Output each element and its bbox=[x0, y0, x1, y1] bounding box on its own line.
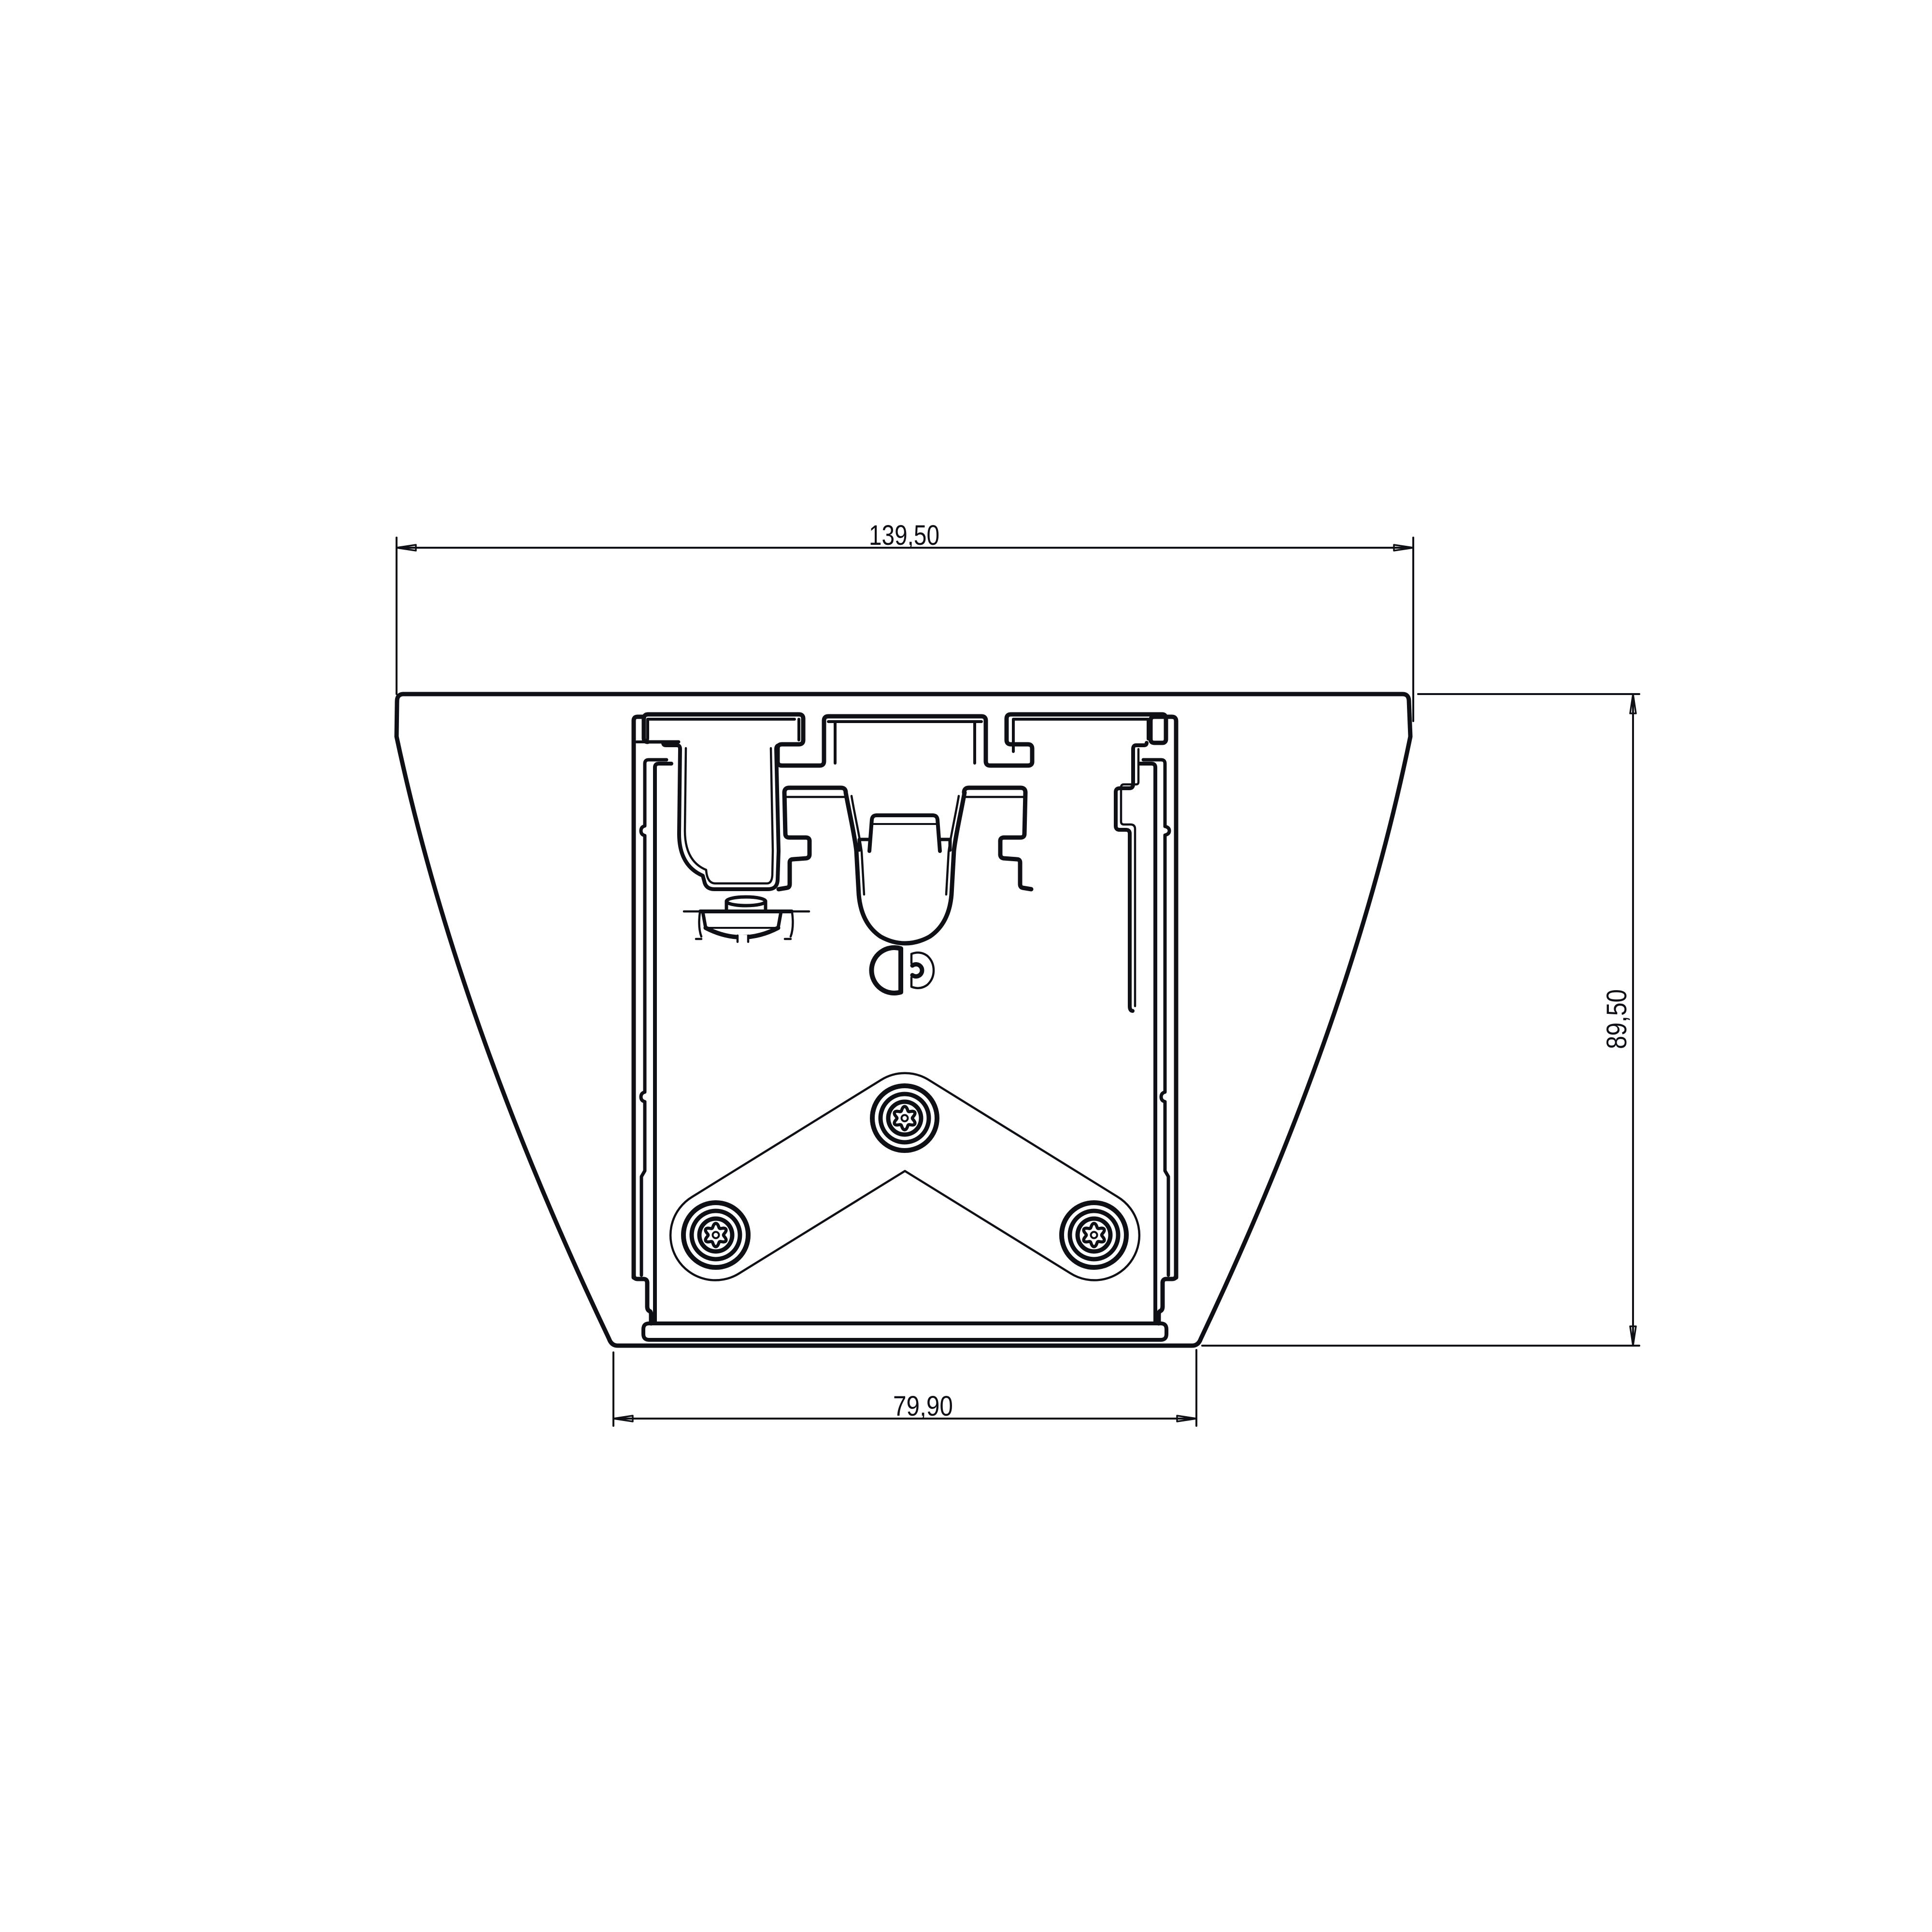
svg-text:89,50: 89,50 bbox=[1601, 989, 1633, 1049]
svg-text:139,50: 139,50 bbox=[869, 520, 939, 551]
svg-text:79,90: 79,90 bbox=[893, 1391, 953, 1422]
